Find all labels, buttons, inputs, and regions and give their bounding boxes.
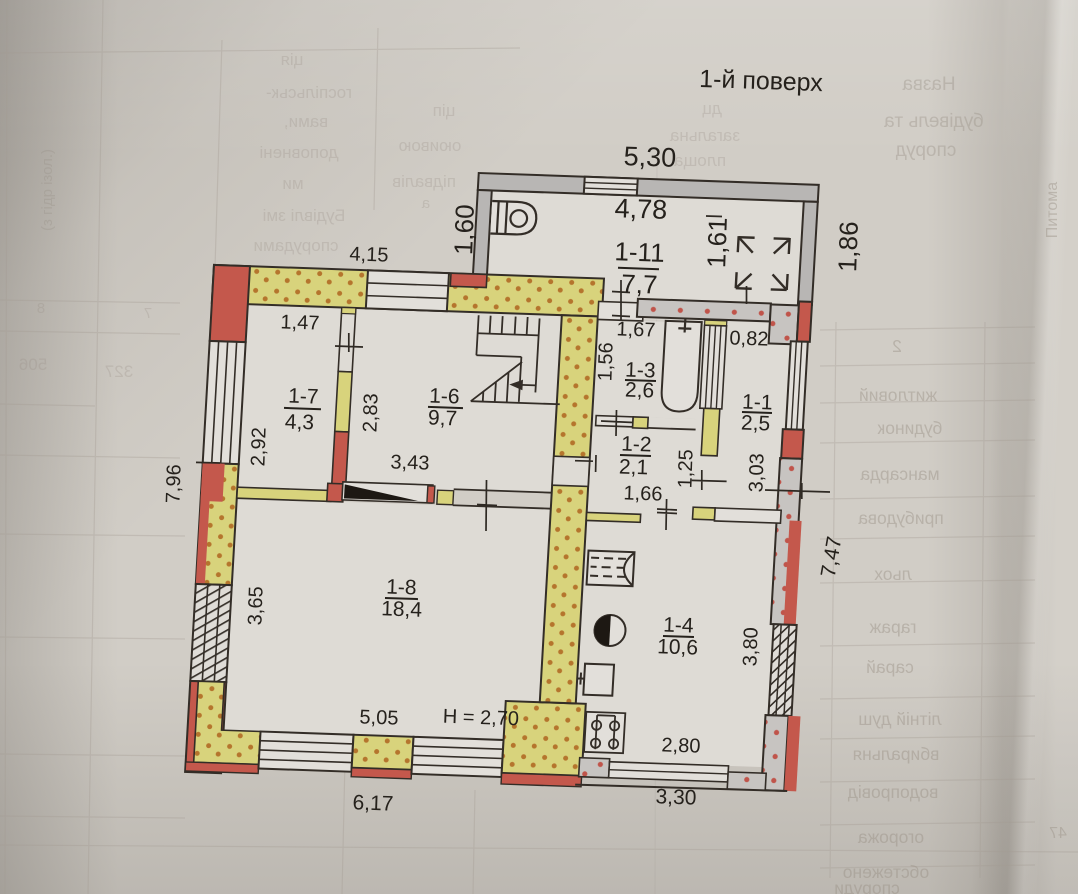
- svg-text:2,92: 2,92: [247, 427, 270, 467]
- svg-text:327: 327: [105, 362, 133, 381]
- svg-text:7: 7: [144, 305, 152, 322]
- svg-text:H = 2,70: H = 2,70: [443, 706, 520, 731]
- svg-text:(з гідр ізол.): (з гідр ізол.): [39, 149, 56, 231]
- svg-text:4,3: 4,3: [285, 410, 315, 434]
- svg-text:7,7: 7,7: [621, 268, 658, 299]
- svg-text:площа: площа: [673, 151, 726, 170]
- svg-text:8: 8: [37, 300, 45, 317]
- svg-text:2,1: 2,1: [619, 455, 649, 479]
- svg-text:1-7: 1-7: [288, 385, 319, 409]
- svg-text:7,96: 7,96: [162, 464, 185, 504]
- svg-text:1,86: 1,86: [832, 221, 864, 273]
- svg-text:3,03: 3,03: [745, 453, 768, 493]
- svg-text:дц: дц: [702, 99, 722, 118]
- svg-text:льох: льох: [874, 564, 912, 584]
- svg-text:загальна: загальна: [669, 126, 740, 145]
- svg-text:1,56: 1,56: [594, 342, 617, 382]
- svg-text:3,30: 3,30: [655, 785, 697, 809]
- svg-text:4,78: 4,78: [614, 193, 668, 225]
- svg-text:ми: ми: [282, 174, 303, 193]
- svg-text:1-6: 1-6: [429, 384, 460, 408]
- svg-text:мансарда: мансарда: [860, 464, 939, 484]
- svg-text:огорожа: огорожа: [858, 827, 924, 847]
- svg-text:оюивою: оюивою: [398, 136, 461, 155]
- svg-text:споруд: споруд: [896, 140, 957, 161]
- svg-text:споруди: споруди: [834, 878, 900, 894]
- svg-text:госпільськ-: госпільськ-: [266, 83, 352, 102]
- svg-text:6,17: 6,17: [352, 791, 394, 815]
- svg-text:Назва: Назва: [902, 74, 956, 95]
- svg-text:літній душ: літній душ: [858, 709, 941, 729]
- svg-text:1-8: 1-8: [386, 575, 417, 599]
- svg-text:Будівлі змі: Будівлі змі: [263, 206, 346, 225]
- svg-text:вами,: вами,: [284, 112, 328, 131]
- svg-text:3,80: 3,80: [739, 627, 762, 667]
- svg-text:будівель та: будівель та: [884, 111, 984, 132]
- svg-text:2,6: 2,6: [625, 378, 655, 402]
- svg-text:506: 506: [19, 355, 47, 374]
- svg-text:9,7: 9,7: [428, 406, 458, 430]
- svg-text:5,05: 5,05: [359, 706, 399, 729]
- svg-text:сарай: сарай: [866, 657, 914, 677]
- svg-text:водопровід: водопровід: [848, 782, 939, 802]
- svg-text:1-4: 1-4: [663, 613, 694, 637]
- svg-text:підвалів: підвалів: [392, 172, 456, 191]
- svg-text:1-й поверх: 1-й поверх: [699, 65, 824, 97]
- svg-text:0,82: 0,82: [729, 327, 769, 350]
- svg-text:7,47: 7,47: [817, 535, 847, 579]
- svg-text:2,80: 2,80: [661, 734, 701, 757]
- svg-text:1,47: 1,47: [280, 311, 320, 334]
- svg-text:а: а: [421, 195, 430, 212]
- svg-text:1-11: 1-11: [614, 236, 665, 268]
- svg-text:спорудами: спорудами: [254, 236, 339, 255]
- svg-text:прибудова: прибудова: [858, 508, 944, 528]
- svg-text:10,6: 10,6: [657, 635, 699, 659]
- svg-text:ціп: ціп: [433, 101, 456, 120]
- svg-text:2,5: 2,5: [741, 411, 771, 435]
- svg-text:2,83: 2,83: [359, 393, 382, 433]
- svg-text:1-2: 1-2: [621, 433, 652, 457]
- svg-text:будинок: будинок: [877, 418, 942, 438]
- svg-text:47: 47: [1049, 825, 1067, 842]
- svg-text:1,66: 1,66: [623, 482, 663, 505]
- svg-text:1,60: 1,60: [448, 204, 480, 256]
- svg-text:2: 2: [892, 336, 902, 356]
- svg-text:5,30: 5,30: [623, 141, 677, 173]
- svg-text:ція: ція: [281, 50, 304, 69]
- svg-text:гараж: гараж: [869, 617, 916, 637]
- svg-text:1,25: 1,25: [674, 449, 697, 489]
- svg-text:житловий: житловий: [859, 385, 937, 405]
- svg-text:вбиральня: вбиральня: [853, 744, 940, 764]
- svg-text:доповнені: доповнені: [259, 143, 338, 162]
- svg-text:3,65: 3,65: [244, 586, 267, 626]
- svg-text:4,15: 4,15: [349, 243, 389, 266]
- svg-text:1,61: 1,61: [701, 217, 733, 269]
- svg-text:Питома: Питома: [1044, 182, 1061, 238]
- svg-text:18,4: 18,4: [381, 597, 423, 621]
- svg-text:1,67: 1,67: [616, 318, 656, 341]
- svg-text:3,43: 3,43: [390, 451, 430, 474]
